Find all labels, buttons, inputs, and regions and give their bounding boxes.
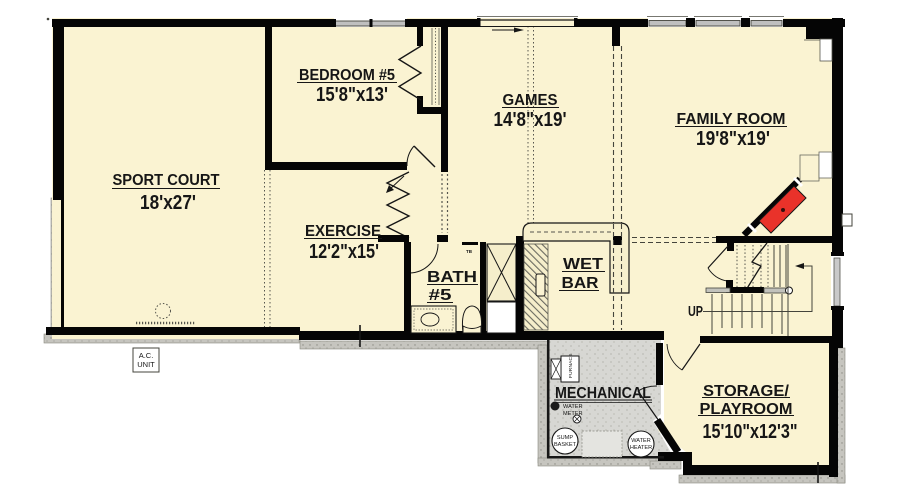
svg-text:WATER: WATER (563, 404, 583, 410)
svg-text:BAR: BAR (562, 275, 599, 292)
svg-text:UP: UP (688, 303, 703, 320)
svg-text:A.C.: A.C. (139, 351, 154, 360)
svg-text:TB: TB (466, 249, 473, 254)
svg-text:SUMP: SUMP (557, 435, 573, 441)
svg-text:19'8"x19': 19'8"x19' (696, 127, 770, 150)
svg-text:WATER: WATER (631, 438, 651, 444)
svg-text:BASKET: BASKET (554, 442, 577, 448)
svg-text:GAMES: GAMES (503, 92, 558, 109)
svg-text:14'8"x19': 14'8"x19' (494, 108, 567, 131)
svg-text:FAMILY ROOM: FAMILY ROOM (677, 111, 786, 128)
svg-text:18'x27': 18'x27' (140, 191, 196, 214)
svg-text:15'8"x13': 15'8"x13' (316, 83, 388, 106)
svg-text:HEATER: HEATER (630, 445, 652, 451)
svg-text:15'10"x12'3": 15'10"x12'3" (703, 420, 798, 443)
svg-text:EXERCISE: EXERCISE (305, 223, 381, 240)
svg-text:BATH: BATH (427, 269, 477, 286)
svg-text:MECHANICAL: MECHANICAL (555, 385, 651, 402)
svg-text:UNIT: UNIT (137, 360, 155, 369)
svg-text:BEDROOM #5: BEDROOM #5 (299, 67, 395, 84)
svg-text:#5: #5 (429, 287, 452, 304)
svg-text:WET: WET (563, 256, 604, 273)
svg-text:FURNACE: FURNACE (568, 353, 574, 378)
svg-text:SPORT COURT: SPORT COURT (113, 172, 220, 189)
svg-text:12'2"x15': 12'2"x15' (309, 240, 379, 263)
